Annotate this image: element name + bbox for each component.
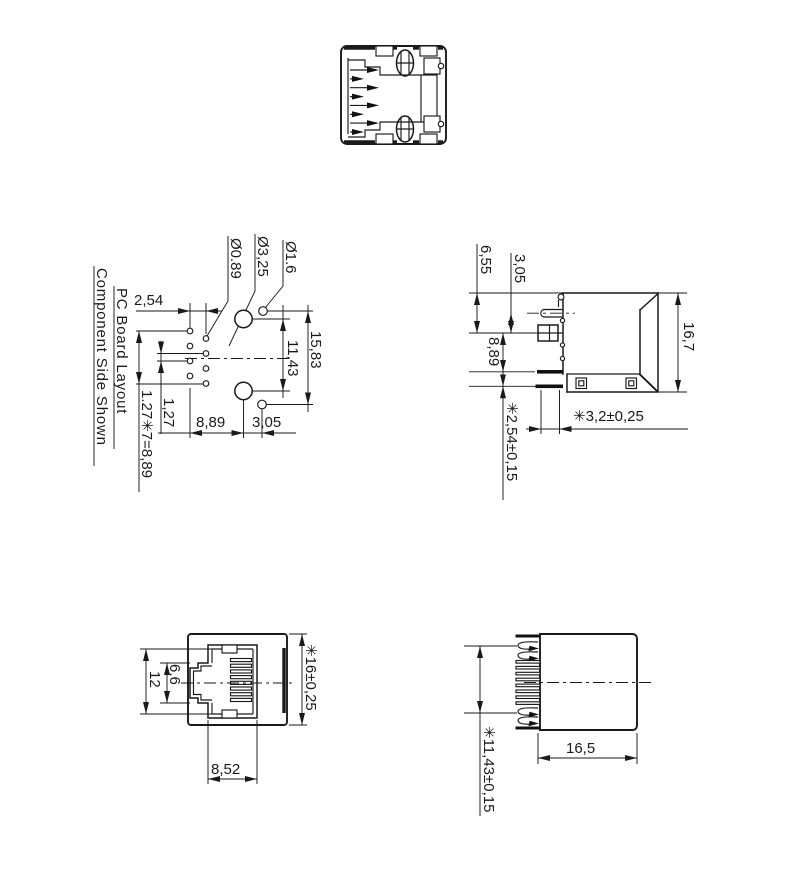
dim-dist-a: 8,89 — [196, 414, 225, 431]
key-tab — [222, 645, 237, 653]
shield-tab — [420, 134, 437, 144]
dim-depth: 16,5 — [566, 740, 595, 757]
rear-view-drawing: 16,5 ✳11,43±0,15 — [464, 634, 651, 816]
key-tab — [222, 710, 237, 718]
side-view-drawing: 6,55 3,05 8,89 ✳2,54±0,15 16,7 ✳3,2±0,25 — [469, 244, 697, 500]
corner-post — [424, 58, 440, 74]
note-component-side: Component Side Shown — [93, 268, 110, 446]
dim-open-height: 12 — [146, 671, 163, 688]
dim-c: 8,89 — [485, 337, 502, 366]
dim-height: 16,7 — [680, 322, 697, 351]
mounting-hole-bottom — [235, 382, 252, 399]
contact-comb — [516, 635, 541, 730]
hook-pin — [558, 294, 564, 300]
drawing-page: PC Board Layout Component Side Shown — [0, 0, 790, 872]
dim-a: 6,55 — [477, 245, 494, 274]
dim-pitch: 2,54 — [134, 292, 163, 309]
shield-tab — [420, 46, 437, 56]
dim-b: 3,05 — [511, 254, 528, 283]
post-hole-bottom — [258, 400, 267, 409]
dim-width: ✳16±0,25 — [302, 644, 319, 711]
screw-boss-bottom — [397, 116, 414, 142]
leader-pin-hole — [204, 236, 228, 341]
shield-tab — [376, 46, 393, 56]
solder-pin — [536, 385, 564, 389]
dim-span-posts: 15,83 — [307, 331, 324, 369]
solder-pin — [537, 370, 563, 374]
technical-drawing-canvas: PC Board Layout Component Side Shown — [0, 0, 790, 872]
rear-outline — [540, 634, 637, 730]
mounting-hole-top — [235, 310, 252, 327]
post-hole-top — [259, 307, 268, 316]
post-hole — [438, 121, 443, 126]
dim-pin-pitch: ✳2,54±0,15 — [503, 402, 520, 481]
dim-hole-pin: Ø0.89 — [227, 238, 244, 279]
base-hole — [576, 378, 587, 389]
dim-pin-len: ✳3,2±0,25 — [573, 408, 644, 425]
corner-post — [424, 116, 440, 132]
dim-dist-b: 3,05 — [252, 414, 281, 431]
post-hole — [438, 63, 443, 68]
top-view-drawing — [341, 46, 446, 144]
dim-row-total: 1.27✳7=8,89 — [138, 390, 155, 478]
dim-body-height: ✳11,43±0,15 — [480, 726, 497, 812]
dim-hole-mount: Ø3,25 — [254, 236, 271, 277]
base-hole — [626, 378, 637, 389]
pcb-board-layout-view: PC Board Layout Component Side Shown — [93, 234, 324, 492]
dim-latch-height: 6,6 — [166, 664, 183, 685]
note-pc-board-layout: PC Board Layout — [113, 288, 130, 414]
dim-row-pitch: 1,27 — [160, 398, 177, 427]
dim-hole-post: Ø1.6 — [282, 241, 299, 274]
dim-span-mounts: 11,43 — [284, 340, 301, 376]
contact-blades — [231, 659, 252, 702]
pin-holes — [187, 328, 209, 386]
dim-open-width: 8,52 — [211, 761, 240, 778]
screw-boss-top — [397, 50, 414, 76]
front-view-drawing: 12 6,6 ✳16±0,25 8,52 — [140, 634, 319, 784]
contact-pins-top-view — [350, 67, 379, 135]
shield-tab — [376, 134, 393, 144]
